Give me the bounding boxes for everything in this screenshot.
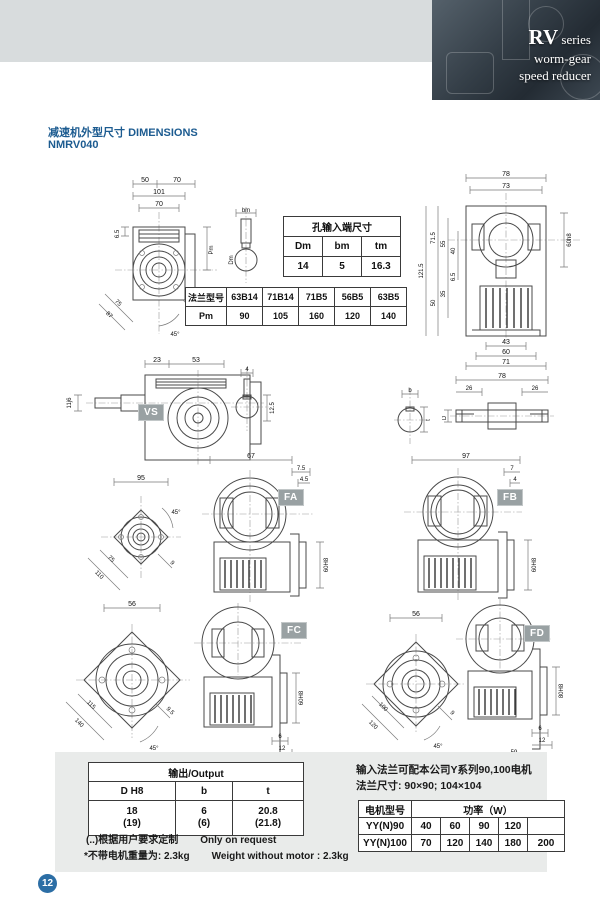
dimension-label: 60 — [502, 349, 510, 356]
table-cell: 105 — [263, 307, 299, 326]
catalog-page: RV series worm-gear speed reducer 减速机外型尺… — [0, 0, 600, 900]
view-label-fb: FB — [497, 489, 523, 506]
flange-model-table: 法兰型号 63B14 71B14 71B5 56B5 63B5 Pm 90 10… — [185, 287, 407, 326]
view-label-vs: VS — [138, 404, 164, 421]
page-number-badge: 12 — [38, 874, 57, 893]
dimension-label: 26 — [466, 386, 473, 392]
dimension-label: 55 — [441, 240, 447, 247]
table-cell: YY(N)90 — [359, 818, 412, 835]
section-title: 减速机外型尺寸 DIMENSIONS — [48, 124, 198, 140]
dimension-label: 100 — [377, 702, 389, 714]
dimension-label: 7.5 — [297, 466, 306, 472]
dimension-label: 75 — [106, 555, 115, 564]
row-header: 法兰型号 — [186, 288, 227, 307]
dimension-label: 71 — [502, 359, 510, 366]
table-cell: 70 — [412, 835, 441, 852]
dimension-label: 71.5 — [431, 232, 437, 244]
table-cell: 71B5 — [299, 288, 335, 307]
column-header: t — [233, 782, 304, 801]
column-header: b — [176, 782, 233, 801]
dimension-label: 9.5 — [165, 706, 176, 717]
input-shaft-detail-drawing: bm Dm — [228, 205, 264, 285]
dimension-label: Dm — [229, 255, 235, 264]
dimension-label: 78 — [498, 373, 506, 380]
row-header: Pm — [186, 307, 227, 326]
key-detail-drawing: 4 12.5 — [225, 365, 285, 435]
table-title: 孔输入端尺寸 — [284, 217, 401, 237]
table-cell: 200 — [528, 835, 565, 852]
series-title: RV series worm-gear speed reducer — [519, 24, 591, 85]
dimension-label: 6.5 — [115, 229, 121, 238]
note-custom: (..)根据用户要求定制Only on request — [86, 831, 276, 846]
dimension-label: 75 — [113, 299, 122, 308]
series-name: RV — [529, 25, 559, 49]
machinery-decor — [446, 52, 494, 94]
dimension-label: 6 — [278, 734, 282, 740]
table-cell: YY(N)100 — [359, 835, 412, 852]
double-shaft-drawing: 78 26 26 D — [442, 370, 562, 445]
dimension-label: 115 — [85, 700, 96, 711]
series-line3: speed reducer — [519, 68, 591, 85]
dimension-label: 4.5 — [300, 477, 309, 483]
table-cell: 71B14 — [263, 288, 299, 307]
side-view-drawing: 78 73 121.5 71.5 55 40 50 35 6.5 60h8 43… — [418, 168, 588, 370]
dimension-label: 6 — [538, 726, 542, 732]
dimension-label: 80H8 — [559, 683, 565, 698]
dimension-label: 70 — [173, 177, 181, 184]
table-cell: 140 — [470, 835, 499, 852]
column-header: 电机型号 — [359, 801, 412, 818]
series-line2: worm-gear — [519, 51, 591, 68]
input-hole-dimensions-table: 孔输入端尺寸 Dm bm tm 14 5 16.3 — [283, 216, 401, 277]
dimension-label: 45° — [433, 744, 443, 750]
dimension-label: 78 — [502, 171, 510, 178]
fd-view-drawing: 80H8 6 12 59 — [452, 593, 570, 763]
motor-power-table: 电机型号 功率（W） YY(N)90 40 60 90 120 YY(N)100… — [358, 800, 565, 852]
dimension-label: 50 — [431, 299, 437, 306]
model-number: NMRV040 — [48, 139, 99, 151]
table-cell: 160 — [299, 307, 335, 326]
dimension-label: 87 — [104, 311, 113, 320]
dimension-label: 60H8 — [324, 557, 330, 572]
column-header: D H8 — [89, 782, 176, 801]
table-cell: 63B5 — [371, 288, 407, 307]
table-cell: 40 — [412, 818, 441, 835]
dimension-label: 9 — [168, 560, 175, 567]
header-photo: RV series worm-gear speed reducer — [432, 0, 600, 100]
dimension-label: 23 — [153, 357, 161, 364]
dimension-label: 60h8 — [567, 233, 573, 247]
table-cell: 90 — [227, 307, 263, 326]
dimension-label: 45° — [171, 510, 181, 516]
dimension-label: 56 — [128, 601, 136, 608]
dimension-label: b — [408, 388, 412, 394]
dimension-label: 4 — [513, 477, 517, 483]
table-cell: 5 — [323, 257, 362, 277]
dimension-label: 120 — [367, 720, 379, 732]
motor-info-line2: 法兰尺寸: 90×90; 104×104 — [356, 778, 482, 793]
note-weight: *不带电机重量为: 2.3kgWeight without motor : 2.… — [84, 847, 349, 862]
dimension-label: 26 — [532, 386, 539, 392]
view-label-fc: FC — [281, 622, 307, 639]
dimension-label: 53 — [192, 357, 200, 364]
table-cell: 60 — [441, 818, 470, 835]
table-cell: 120 — [499, 818, 528, 835]
dimension-label: 12.5 — [270, 402, 276, 414]
table-cell: 120 — [335, 307, 371, 326]
column-header: bm — [323, 237, 362, 257]
fb-view-drawing: 97 7 4 60H8 — [390, 450, 545, 608]
dimension-label: 12 — [539, 738, 546, 744]
dimension-label: 43 — [502, 339, 510, 346]
dimension-label: bm — [242, 208, 250, 214]
dimension-label: 11j6 — [67, 397, 73, 409]
dimension-label: 6.5 — [451, 272, 457, 281]
fc-flange-drawing: 56 115 140 9.5 45° — [52, 598, 202, 763]
keyway-section-drawing: b t — [392, 386, 432, 446]
dimension-label: 101 — [153, 189, 165, 196]
view-label-fd: FD — [524, 625, 550, 642]
column-header: Dm — [284, 237, 323, 257]
dimension-label: 60H8 — [532, 557, 538, 572]
dimension-label: 7 — [510, 466, 514, 472]
dimension-label: 121.5 — [419, 263, 425, 279]
dimension-label: 56 — [412, 611, 420, 618]
dimension-label: D — [442, 415, 448, 420]
table-cell: 120 — [441, 835, 470, 852]
dimension-label: t — [426, 419, 432, 421]
fa-flange-drawing: 95 45° 75 110 9 — [70, 470, 190, 605]
dimension-label: 97 — [462, 453, 470, 460]
fa-view-drawing: 67 7.5 4.5 60H8 — [192, 450, 342, 608]
motor-info-line1: 输入法兰可配本公司Y系列90,100电机 — [356, 762, 532, 777]
table-cell: 63B14 — [227, 288, 263, 307]
dimension-label: 70 — [155, 201, 163, 208]
output-dimensions-table: 输出/Output D H8 b t 18(19) 6(6) 20.8(21.8… — [88, 762, 304, 836]
dimension-label: Pm — [209, 245, 215, 254]
table-cell: 56B5 — [335, 288, 371, 307]
table-cell: 180 — [499, 835, 528, 852]
table-row: YY(N)90 40 60 90 120 — [359, 818, 565, 835]
dimension-label: 95 — [137, 475, 145, 482]
column-header: tm — [362, 237, 401, 257]
dimension-label: 67 — [247, 453, 255, 460]
table-cell: 140 — [371, 307, 407, 326]
table-cell: 16.3 — [362, 257, 401, 277]
dimension-label: 45° — [170, 332, 180, 338]
dimension-label: 60H8 — [299, 690, 305, 705]
dimension-label: 4 — [245, 367, 249, 373]
dimension-label: 40 — [451, 247, 457, 254]
table-cell — [528, 818, 565, 835]
column-header: 功率（W） — [412, 801, 565, 818]
view-label-fa: FA — [278, 489, 304, 506]
dimension-label: 35 — [441, 290, 447, 297]
table-title: 输出/Output — [89, 763, 304, 782]
dimension-label: 73 — [502, 183, 510, 190]
table-row: YY(N)100 70 120 140 180 200 — [359, 835, 565, 852]
dimension-label: 110 — [93, 570, 104, 581]
dimension-label: 50 — [141, 177, 149, 184]
table-cell: 90 — [470, 818, 499, 835]
table-cell: 14 — [284, 257, 323, 277]
front-view-drawing: 50 70 101 70 6.5 Pm 75 87 45° M6X8 — [95, 172, 230, 354]
top-gray-band — [0, 0, 432, 62]
